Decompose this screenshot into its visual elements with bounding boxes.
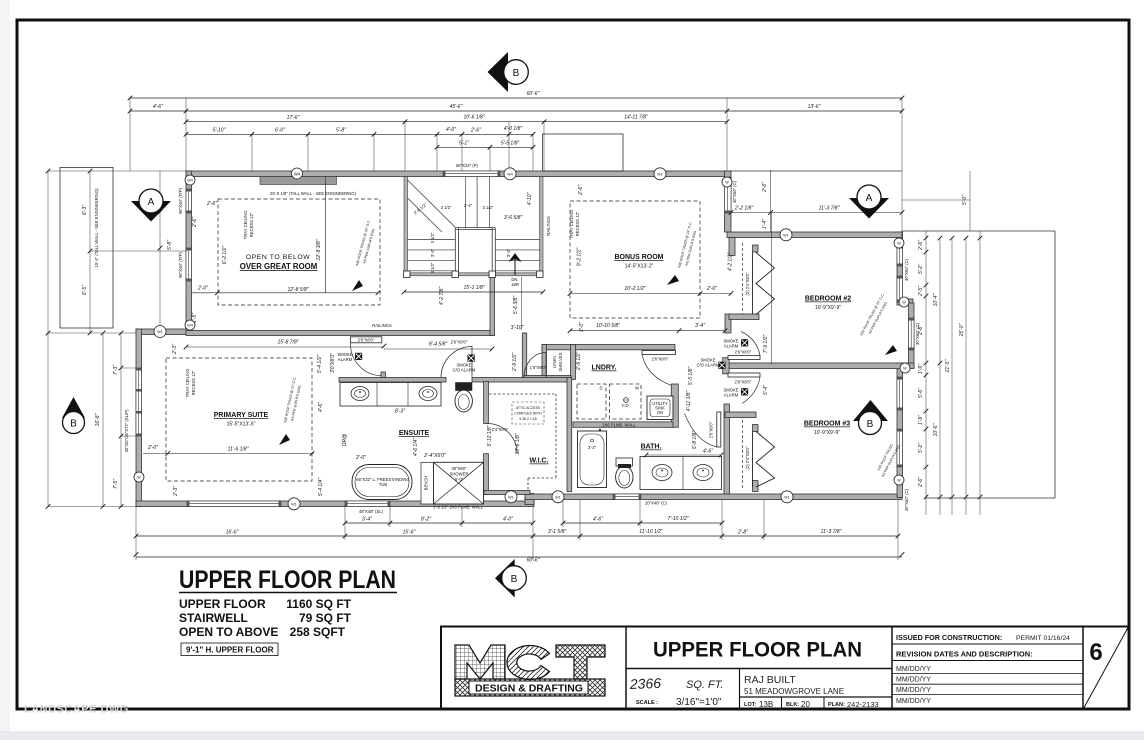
svg-text:MM/DD/YY: MM/DD/YY [896, 677, 931, 684]
svg-text:2'-9 1/2": 2'-9 1/2" [512, 353, 518, 373]
svg-text:LOT:: LOT: [744, 702, 756, 708]
svg-text:B: B [513, 68, 520, 79]
svg-text:2366: 2366 [629, 675, 662, 692]
svg-text:15'-1 1/8": 15'-1 1/8" [463, 285, 484, 291]
svg-text:W4: W4 [187, 179, 192, 183]
svg-text:7'-10 1/2": 7'-10 1/2" [667, 516, 688, 522]
svg-text:W: W [635, 386, 639, 391]
svg-text:10'-9"X9'-9": 10'-9"X9'-9" [814, 430, 840, 436]
svg-text:2'-0": 2'-0" [355, 455, 366, 461]
svg-text:5'-4 1/4": 5'-4 1/4" [318, 478, 324, 497]
svg-text:F.D.: F.D. [622, 403, 629, 408]
svg-text:15'-5"X13'-5": 15'-5"X13'-5" [227, 422, 256, 428]
svg-text:8'-2": 8'-2" [421, 517, 431, 523]
svg-text:258 SQFT: 258 SQFT [290, 625, 346, 639]
svg-text:7'-5": 7'-5" [113, 479, 119, 489]
svg-text:W: W [897, 479, 901, 483]
svg-text:PLAN:: PLAN: [828, 702, 845, 708]
svg-text:RECESS 12": RECESS 12" [249, 212, 254, 237]
svg-text:10'-2 1/2": 10'-2 1/2" [624, 286, 645, 292]
svg-text:3'-4": 3'-4" [362, 517, 372, 523]
svg-text:5'-4 1/2": 5'-4 1/2" [317, 355, 323, 374]
svg-text:4'-11 1/8": 4'-11 1/8" [686, 390, 692, 411]
svg-text:5'-5 1/8": 5'-5 1/8" [501, 141, 520, 147]
svg-text:11'-6 1/8": 11'-6 1/8" [228, 447, 249, 453]
svg-text:1'-4": 1'-4" [762, 219, 768, 229]
svg-text:2'-6": 2'-6" [762, 182, 768, 193]
svg-text:11'-10 1/2": 11'-10 1/2" [639, 529, 663, 535]
svg-text:5'-4": 5'-4" [763, 385, 769, 395]
svg-text:26'-0 1/8" (TALL WALL - SEE EN: 26'-0 1/8" (TALL WALL - SEE ENGINEERING) [270, 191, 357, 196]
svg-text:UPPER FLOOR: UPPER FLOOR [179, 597, 266, 611]
svg-text:W1: W1 [657, 172, 662, 176]
svg-text:2'-6": 2'-6" [578, 185, 584, 196]
svg-text:30"X60" (C): 30"X60" (C) [732, 180, 737, 203]
svg-text:11'-3 7/8": 11'-3 7/8" [821, 529, 842, 535]
svg-text:W: W [903, 367, 907, 371]
svg-text:1'-9": 1'-9" [918, 415, 924, 425]
svg-text:4'-2 1/2": 4'-2 1/2" [728, 253, 734, 272]
svg-text:14'-11 7/8": 14'-11 7/8" [624, 115, 648, 121]
svg-text:242-2133: 242-2133 [847, 700, 879, 709]
svg-text:STAIRWELL: STAIRWELL [179, 611, 248, 625]
svg-text:10'-9"X9'-9": 10'-9"X9'-9" [815, 305, 841, 311]
svg-text:2'6"X8'0": 2'6"X8'0" [735, 350, 752, 355]
svg-text:4'-0": 4'-0" [446, 127, 456, 133]
svg-text:W4: W4 [507, 172, 512, 176]
svg-text:2'-2 1/8": 2'-2 1/8" [734, 206, 754, 212]
svg-text:MM/DD/YY: MM/DD/YY [896, 687, 931, 694]
svg-text:30"X60" (C): 30"X60" (C) [904, 258, 909, 281]
svg-text:SHELVES: SHELVES [558, 352, 563, 371]
svg-text:5'-2": 5'-2" [918, 264, 924, 274]
svg-text:W1: W1 [555, 495, 560, 499]
svg-text:20"X48" (C): 20"X48" (C) [645, 501, 668, 506]
svg-text:10'-10 5/8": 10'-10 5/8" [596, 323, 620, 329]
svg-text:W.I.C.: W.I.C. [529, 458, 548, 465]
svg-text:2'-4": 2'-4" [464, 203, 473, 208]
svg-text:ALARM: ALARM [724, 344, 739, 349]
svg-text:SQ. FT.: SQ. FT. [686, 679, 724, 691]
svg-text:45'-6": 45'-6" [450, 104, 463, 110]
svg-text:W4: W4 [294, 172, 301, 177]
svg-text:LINEN: LINEN [552, 356, 557, 368]
svg-text:5'-8": 5'-8" [167, 240, 173, 250]
svg-text:9'-1" H. UPPER FLOOR: 9'-1" H. UPPER FLOOR [186, 646, 274, 655]
svg-text:11'-3 7/8": 11'-3 7/8" [819, 206, 840, 212]
svg-text:30"X60" (C): 30"X60" (C) [904, 488, 909, 511]
svg-text:6'-3": 6'-3" [82, 205, 88, 215]
svg-text:4'-0": 4'-0" [503, 517, 513, 523]
svg-text:BEDROOM #2: BEDROOM #2 [805, 296, 851, 303]
svg-text:BATH.: BATH. [641, 444, 662, 451]
svg-text:51 MEADOWGROVE LANE: 51 MEADOWGROVE LANE [744, 687, 844, 696]
svg-text:4'-6": 4'-6" [703, 449, 713, 455]
svg-text:3'-6 5/8": 3'-6 5/8" [504, 215, 523, 221]
svg-text:PRIMARY SUITE: PRIMARY SUITE [214, 412, 269, 419]
svg-text:60'-6": 60'-6" [527, 91, 540, 97]
svg-text:2'-0": 2'-0" [579, 322, 585, 333]
svg-text:96"X48" (P/P): 96"X48" (P/P) [178, 188, 183, 214]
svg-text:15'-6": 15'-6" [403, 530, 416, 536]
svg-text:14'-5"X13'-2": 14'-5"X13'-2" [625, 264, 654, 270]
svg-text:2'6"X8'0": 2'6"X8'0" [735, 380, 752, 385]
svg-text:8'-3": 8'-3" [395, 409, 405, 415]
svg-text:2'-6": 2'-6" [918, 477, 924, 488]
svg-text:2'6"X8'0": 2'6"X8'0" [652, 357, 669, 362]
svg-text:3'-1 5/8": 3'-1 5/8" [548, 529, 567, 535]
svg-text:ALARM: ALARM [338, 357, 353, 362]
svg-text:4'-6": 4'-6" [318, 402, 324, 412]
svg-text:REVISION DATES AND DESCRIPTION: REVISION DATES AND DESCRIPTION: [896, 650, 1033, 659]
svg-text:2'-5": 2'-5" [918, 286, 924, 297]
svg-text:2'-9 1/2": 2'-9 1/2" [576, 352, 582, 372]
svg-text:5'-1": 5'-1" [459, 141, 469, 147]
svg-text:60"X24" (P): 60"X24" (P) [456, 163, 478, 168]
svg-text:RAILINGS: RAILINGS [546, 216, 551, 236]
svg-text:TRAY CEILING: TRAY CEILING [185, 369, 190, 398]
svg-text:C/O ALARM: C/O ALARM [453, 368, 476, 373]
svg-text:SHOWER: SHOWER [450, 472, 469, 477]
svg-text:2'-6": 2'-6" [918, 240, 924, 251]
svg-text:2'-0": 2'-0" [197, 286, 208, 292]
svg-text:4'-6": 4'-6" [593, 517, 603, 523]
svg-text:5'-0": 5'-0" [455, 477, 464, 482]
svg-text:1'-5 1/2" 2X6 PLMB. WALL: 1'-5 1/2" 2X6 PLMB. WALL [433, 505, 484, 510]
svg-text:2X6 PLMB. WALL: 2X6 PLMB. WALL [602, 423, 636, 428]
svg-text:5'-8": 5'-8" [336, 128, 346, 134]
svg-text:A: A [866, 193, 873, 204]
svg-text:OVER GREAT ROOM: OVER GREAT ROOM [240, 262, 317, 271]
svg-text:30"/30"/36"X72" (SL/P): 30"/30"/36"X72" (SL/P) [124, 409, 129, 452]
svg-text:LNDRY.: LNDRY. [591, 365, 616, 372]
svg-text:3/16"=1'0": 3/16"=1'0" [676, 697, 722, 708]
svg-text:W: W [137, 476, 141, 480]
svg-text:3'-4": 3'-4" [430, 248, 435, 257]
svg-text:4'-6": 4'-6" [153, 104, 163, 110]
svg-text:ISSUED FOR CONSTRUCTION:: ISSUED FOR CONSTRUCTION: [896, 633, 1002, 642]
svg-text:13'-6": 13'-6" [808, 104, 821, 110]
svg-text:10'-6 1/8": 10'-6 1/8" [463, 115, 484, 121]
svg-text:96"X48" (P/P): 96"X48" (P/P) [178, 252, 183, 278]
svg-text:25'-0": 25'-0" [959, 323, 965, 337]
svg-text:2'-6": 2'-6" [192, 217, 198, 228]
svg-text:13B: 13B [759, 700, 773, 709]
svg-text:30"X60" (C): 30"X60" (C) [915, 322, 920, 345]
svg-text:COMPLIES WITH: COMPLIES WITH [514, 412, 542, 416]
svg-text:MM/DD/YY: MM/DD/YY [896, 666, 931, 673]
svg-text:3'0"X8'0": 3'0"X8'0" [330, 353, 336, 373]
svg-text:15'-8 7/8": 15'-8 7/8" [277, 340, 298, 346]
svg-text:2'-8": 2'-8" [737, 530, 748, 536]
svg-text:20: 20 [801, 700, 810, 709]
svg-text:(2) 2'4"X8'0": (2) 2'4"X8'0" [745, 272, 750, 295]
svg-text:2'-4"X6'0": 2'-4"X6'0" [423, 453, 446, 459]
svg-text:OPEN TO ABOVE: OPEN TO ABOVE [179, 625, 278, 639]
svg-text:2'-0": 2'-0" [147, 445, 158, 451]
svg-text:B: B [867, 419, 874, 430]
svg-text:6'-0": 6'-0" [275, 128, 285, 134]
svg-text:BLK:: BLK: [786, 702, 799, 708]
svg-text:5'-5 1/8": 5'-5 1/8" [688, 367, 694, 386]
svg-text:RAJ BUILT: RAJ BUILT [744, 674, 796, 686]
svg-text:60'-6": 60'-6" [527, 558, 540, 564]
svg-text:W1: W1 [508, 495, 513, 499]
svg-text:UPPER FLOOR PLAN: UPPER FLOOR PLAN [179, 566, 396, 594]
svg-text:6'-5": 6'-5" [82, 285, 88, 295]
svg-text:16'-6": 16'-6" [226, 530, 239, 536]
svg-text:16R: 16R [511, 282, 519, 287]
svg-text:ATTIC ACCESS: ATTIC ACCESS [516, 406, 541, 410]
svg-text:RAILINGS: RAILINGS [372, 323, 392, 328]
svg-text:W: W [897, 242, 901, 246]
svg-text:15'-4" (TALL WALL - SEE ENGINE: 15'-4" (TALL WALL - SEE ENGINEERING) [94, 188, 99, 268]
svg-text:W1: W1 [157, 330, 162, 334]
svg-text:17'-6": 17'-6" [287, 115, 300, 121]
svg-text:9.36.2.7./(8: 9.36.2.7./(8 [519, 417, 536, 421]
svg-text:BEDROOM #3: BEDROOM #3 [804, 421, 850, 428]
svg-text:ON: ON [657, 410, 663, 415]
svg-text:48"X48" (SL): 48"X48" (SL) [359, 509, 384, 514]
svg-text:2'-6": 2'-6" [470, 128, 481, 134]
svg-text:W4: W4 [187, 324, 192, 328]
svg-text:LANDSCAPE DWG: LANDSCAPE DWG [24, 704, 129, 716]
svg-text:1'-9": 1'-9" [918, 364, 924, 374]
svg-text:BENCH: BENCH [424, 476, 429, 491]
svg-text:TRAY CEILING: TRAY CEILING [569, 210, 574, 239]
svg-text:W1: W1 [783, 233, 788, 237]
svg-text:(2) 2'4"X8'0": (2) 2'4"X8'0" [745, 446, 750, 469]
svg-text:OPEN TO BELOW: OPEN TO BELOW [246, 254, 311, 261]
svg-text:6: 6 [1089, 639, 1102, 666]
svg-text:W1: W1 [291, 502, 296, 506]
svg-text:SCALE :: SCALE : [636, 700, 658, 706]
svg-text:PERMIT 01/16/24: PERMIT 01/16/24 [1016, 635, 1070, 642]
svg-text:ENSUITE: ENSUITE [399, 430, 430, 437]
svg-text:UPPER FLOOR PLAN: UPPER FLOOR PLAN [653, 638, 862, 662]
svg-text:4'-0 1/8": 4'-0 1/8" [504, 126, 523, 132]
svg-text:RECESS 12": RECESS 12" [191, 370, 196, 395]
svg-text:3 1/2": 3 1/2" [430, 262, 435, 273]
svg-text:7'-9 1/2": 7'-9 1/2" [763, 335, 769, 354]
svg-text:5'-0": 5'-0" [962, 195, 968, 205]
svg-text:3'-4": 3'-4" [695, 323, 705, 329]
svg-text:16'-8": 16'-8" [95, 413, 101, 426]
svg-text:3 1/2": 3 1/2" [441, 205, 452, 210]
svg-text:3 1/2": 3 1/2" [430, 232, 435, 243]
svg-text:6'-2 1/2": 6'-2 1/2" [222, 246, 228, 265]
svg-text:8'-4 5/8": 8'-4 5/8" [429, 342, 448, 348]
svg-text:10'-4": 10'-4" [933, 293, 939, 306]
svg-text:36"X60": 36"X60" [451, 466, 467, 471]
svg-text:MM/DD/YY: MM/DD/YY [896, 698, 931, 705]
svg-text:C/O ALARM: C/O ALARM [697, 363, 720, 368]
svg-text:5'-8 1/8": 5'-8 1/8" [692, 431, 698, 450]
svg-text:5'-10": 5'-10" [213, 128, 226, 134]
svg-text:2'-3": 2'-3" [173, 486, 179, 497]
svg-text:4'-2 7/8": 4'-2 7/8" [439, 287, 445, 306]
svg-text:DR@: DR@ [342, 434, 348, 446]
svg-text:2'6"X8'0": 2'6"X8'0" [709, 421, 714, 438]
svg-text:5'-6": 5'-6" [918, 388, 924, 398]
svg-text:1'6"X8'0": 1'6"X8'0" [530, 365, 547, 370]
svg-text:W1: W1 [784, 495, 789, 499]
svg-text:2'6"X8'0": 2'6"X8'0" [451, 340, 468, 345]
svg-text:TUB: TUB [379, 482, 388, 487]
svg-text:2'4"X8'0": 2'4"X8'0" [492, 427, 509, 432]
svg-text:79 SQ FT: 79 SQ FT [299, 611, 352, 625]
svg-text:B: B [511, 574, 518, 585]
svg-text:2'-0": 2'-0" [706, 286, 717, 292]
svg-text:10'-6": 10'-6" [933, 423, 939, 436]
svg-text:2'-6": 2'-6" [206, 201, 217, 207]
svg-text:21'-5": 21'-5" [945, 359, 951, 373]
svg-text:4'-6 1/4": 4'-6 1/4" [413, 438, 419, 457]
svg-text:DESIGN & DRAFTING: DESIGN & DRAFTING [475, 683, 583, 695]
svg-text:RECESS 12": RECESS 12" [575, 211, 580, 236]
svg-text:W: W [725, 181, 729, 185]
svg-text:7'-3": 7'-3" [113, 365, 119, 375]
svg-text:5'-6 3/8": 5'-6 3/8" [513, 296, 519, 315]
svg-text:2'6"X8'0": 2'6"X8'0" [358, 338, 375, 343]
svg-text:W: W [902, 301, 906, 305]
svg-text:12'-8 5/8": 12'-8 5/8" [287, 287, 308, 293]
svg-text:5'-2": 5'-2" [918, 443, 924, 453]
svg-text:9'-2 1/2": 9'-2 1/2" [577, 248, 583, 267]
svg-text:ALARM: ALARM [724, 393, 739, 398]
svg-text:3'-4": 3'-4" [506, 248, 511, 257]
svg-text:2'-3": 2'-3" [172, 344, 178, 355]
svg-text:1160 SQ FT: 1160 SQ FT [286, 597, 351, 611]
svg-text:BONUS ROOM: BONUS ROOM [615, 254, 664, 261]
svg-text:D: D [599, 386, 602, 391]
svg-text:TRAY CEILING: TRAY CEILING [243, 211, 248, 240]
svg-text:A: A [148, 197, 155, 208]
svg-text:3 1/2": 3 1/2" [483, 205, 494, 210]
svg-text:4'-10": 4'-10" [527, 192, 533, 205]
svg-text:B: B [70, 419, 77, 430]
svg-text:10'-6 1/8": 10'-6 1/8" [515, 433, 521, 454]
svg-text:12'-8 3/8": 12'-8 3/8" [316, 239, 322, 260]
svg-text:3'-2": 3'-2" [588, 445, 597, 450]
